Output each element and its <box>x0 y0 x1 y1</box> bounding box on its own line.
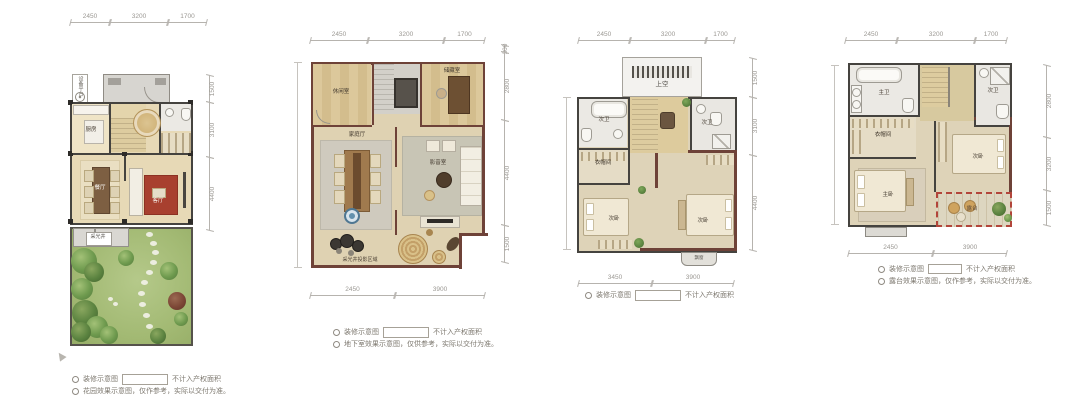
dim-label: 2450 <box>848 245 933 252</box>
chair <box>436 88 447 99</box>
dim-segment: 300 <box>504 45 518 52</box>
bathroom-right <box>692 99 735 150</box>
dim-segment: 3200 <box>897 27 975 41</box>
dim-segment: 3900 <box>933 240 1007 254</box>
tree <box>71 322 91 342</box>
plan3-dim-left <box>566 97 567 250</box>
plan1-dim-top: 2450 3200 1700 <box>70 9 207 23</box>
chair <box>334 190 345 204</box>
tree <box>160 262 178 280</box>
sofa <box>129 168 143 216</box>
legend-note: 不计入产权面积 <box>966 266 1015 273</box>
pillow <box>586 219 594 231</box>
cymbal-icon <box>336 248 342 254</box>
chair <box>110 202 120 214</box>
legend-label: 露台效果示意图，仅作参考，实际以交付为准。 <box>889 278 1036 285</box>
plan2-dim-right: 300 2800 4400 1500 <box>504 45 518 262</box>
plan2-dim-left <box>297 62 298 268</box>
round-table <box>436 172 452 188</box>
dim-label: 1700 <box>706 32 735 39</box>
rattan-stool <box>432 250 446 264</box>
wall <box>640 248 737 251</box>
chair <box>370 190 381 204</box>
dim-segment: 1500 <box>752 58 766 97</box>
pillow <box>586 203 594 215</box>
skylight-grille <box>632 66 692 78</box>
legend-swatch-box <box>122 374 168 385</box>
kitchen-counter <box>73 105 109 115</box>
column <box>68 219 73 224</box>
bench <box>906 178 914 206</box>
chair <box>110 170 120 182</box>
tree <box>168 292 186 310</box>
door-mat <box>155 78 166 85</box>
dim-label: 2450 <box>578 32 630 39</box>
pillow <box>725 199 732 212</box>
chair <box>334 172 345 186</box>
plan1-dim-right: 1500 3100 4400 <box>209 75 223 230</box>
sofa <box>460 146 482 206</box>
wall <box>420 125 485 127</box>
sink-icon <box>165 108 174 117</box>
dim-segment: 2450 <box>310 282 395 296</box>
path-stone <box>150 260 157 265</box>
dim-label: 2800 <box>505 79 512 93</box>
plant-icon <box>634 238 644 248</box>
dim-segment: 2450 <box>310 27 368 41</box>
dim-label: 1500 <box>505 236 512 250</box>
dim-segment: 2450 <box>845 27 897 41</box>
column <box>122 219 127 224</box>
dim-segment: 1700 <box>975 27 1007 41</box>
legend-bullet-icon <box>585 292 592 299</box>
dim-label: 3900 <box>652 275 734 282</box>
drum-kit-icon <box>352 240 364 252</box>
legend-note: 不计入产权面积 <box>685 292 734 299</box>
dining-label: 餐厅 <box>94 186 105 192</box>
dim-label: 1500 <box>753 70 760 84</box>
coffee-table <box>152 188 166 198</box>
door-mat <box>108 78 121 85</box>
long-table <box>344 150 370 212</box>
wall <box>655 150 658 188</box>
wall <box>848 157 916 159</box>
dim-label: 3100 <box>753 119 760 133</box>
chair <box>370 154 381 168</box>
north-arrow-icon <box>55 350 66 361</box>
dim-segment: 3450 <box>578 270 652 284</box>
armchair <box>426 140 440 152</box>
wall <box>577 183 629 185</box>
pillow <box>857 193 865 207</box>
plan2-dim-bottom: 2450 3900 <box>310 282 485 296</box>
dim-label: 2450 <box>310 287 395 294</box>
dim-segment: 4400 <box>209 157 223 230</box>
bench <box>678 200 686 230</box>
legend-bullet-icon <box>72 376 79 383</box>
dim-label: 1700 <box>444 32 485 39</box>
path-stone <box>146 270 153 275</box>
plant-icon <box>1004 214 1012 222</box>
dim-segment: 3900 <box>652 270 734 284</box>
stair-area <box>630 97 688 153</box>
pillow <box>857 175 865 189</box>
armchair <box>660 112 675 129</box>
pillow <box>997 156 1004 169</box>
living-label: 客厅 <box>152 199 163 205</box>
wardrobe <box>706 155 734 165</box>
dim-segment: 3100 <box>752 97 766 155</box>
wall <box>311 125 372 127</box>
bay-tab <box>865 227 907 237</box>
bay-label: 飘窗 <box>695 256 704 261</box>
wall <box>395 127 397 167</box>
table-runner <box>353 153 361 209</box>
dim-segment: 3200 <box>630 27 706 41</box>
dim-label: 4400 <box>753 195 760 209</box>
tree <box>71 278 93 300</box>
legend-row: 装修示意图 不计入产权面积 <box>333 327 482 338</box>
dim-segment: 4400 <box>752 155 766 250</box>
fan-icon <box>75 92 85 102</box>
second-bath <box>976 65 1010 125</box>
round-blue-seat <box>344 208 360 224</box>
toilet-icon <box>581 128 592 142</box>
dim-label: 2450 <box>70 14 110 21</box>
legend-swatch-box <box>928 264 962 274</box>
table <box>956 212 966 222</box>
void-area <box>622 57 702 97</box>
bathroom <box>161 104 191 131</box>
dim-segment: 1700 <box>444 27 485 41</box>
legend-row: 装修示意图 不计入产权面积 <box>72 374 221 385</box>
path-stone <box>108 297 113 301</box>
stair-core <box>374 64 420 114</box>
legend-label: 装修示意图 <box>889 266 924 273</box>
dim-segment: 2800 <box>504 52 518 120</box>
sink-icon <box>696 104 706 114</box>
legend-row: 地下室效果示意图，仅供参考，实际以交付为准。 <box>333 341 498 348</box>
legend-bullet-icon <box>333 329 340 336</box>
path-stone <box>152 250 159 255</box>
sink-icon <box>852 100 861 109</box>
dim-segment: 1500 <box>1046 190 1060 225</box>
bed <box>583 198 629 236</box>
wardrobe <box>852 130 861 154</box>
tree <box>118 250 134 266</box>
path-stone <box>143 313 150 318</box>
dim-label: 2800 <box>1047 94 1054 108</box>
bed-right-label: 次卧 <box>697 219 708 225</box>
desk <box>448 76 470 114</box>
wall <box>974 125 1012 127</box>
toilet-icon <box>181 108 191 121</box>
toilet-icon <box>902 98 914 113</box>
dim-label: 3900 <box>933 245 1007 252</box>
master-bath-label: 主卫 <box>878 91 889 97</box>
sink-icon <box>979 68 989 78</box>
legend-note: 不计入产权面积 <box>433 329 482 336</box>
dim-segment: 2450 <box>578 27 630 41</box>
legend-row: 露台效果示意图，仅作参考，实际以交付为准。 <box>878 278 1036 285</box>
dim-label: 2450 <box>845 32 897 39</box>
tv-wall <box>183 172 186 208</box>
bath-right-label: 次卫 <box>701 121 712 127</box>
light-well-label: 采光井 <box>90 235 105 240</box>
plant-icon <box>638 186 646 194</box>
chair <box>110 186 120 198</box>
dim-label: 1700 <box>168 14 207 21</box>
dim-segment: 3200 <box>368 27 444 41</box>
stair-core-box <box>394 78 418 108</box>
path-stone <box>141 280 148 285</box>
dim-label: 3200 <box>630 32 706 39</box>
dim-label: 2450 <box>310 32 368 39</box>
bed <box>854 170 906 212</box>
column <box>188 219 193 224</box>
plant-icon <box>992 202 1006 216</box>
floorplan-sheet: 2450 3200 1700 1500 3100 4400 设备平台 <box>0 0 1080 413</box>
dim-label: 3450 <box>578 275 652 282</box>
pillow <box>997 139 1004 152</box>
plan4-dim-right: 2800 3200 1500 <box>1046 65 1060 225</box>
wardrobe <box>938 122 947 162</box>
legend-bullet-icon <box>333 341 340 348</box>
dim-segment: 1500 <box>209 75 223 102</box>
legend-row: 花园效果示意图，仅作参考，实际以交付为准。 <box>72 388 230 395</box>
wall <box>934 120 936 192</box>
toilet-icon <box>996 104 1009 119</box>
path-stone <box>150 241 157 246</box>
chair <box>84 186 94 198</box>
tree <box>150 328 166 344</box>
legend-label: 地下室效果示意图，仅供参考，实际以交付为准。 <box>344 341 498 348</box>
dim-label: 3200 <box>897 32 975 39</box>
plant-icon <box>682 98 691 107</box>
wardrobe <box>598 240 632 249</box>
master-bed-label: 主卧 <box>882 193 893 199</box>
plan4-dim-top: 2450 3200 1700 <box>845 27 1007 41</box>
terrace-label: 露台 <box>966 207 977 213</box>
lightwell-note-label: 采光井投影区域 <box>342 258 377 263</box>
shower-icon <box>712 134 731 149</box>
chair <box>84 202 94 214</box>
legend-label: 花园效果示意图，仅作参考，实际以交付为准。 <box>83 388 230 395</box>
kitchen-label: 厨房 <box>85 128 96 134</box>
path-stone <box>139 302 146 307</box>
dim-segment: 1700 <box>706 27 735 41</box>
storage-closet <box>161 133 191 153</box>
sink-icon <box>613 129 623 139</box>
plan3-dim-top: 2450 3200 1700 <box>578 27 735 41</box>
dim-label: 3200 <box>368 32 444 39</box>
path-stone <box>146 232 153 237</box>
walkin-closet <box>579 150 628 183</box>
dim-segment: 4400 <box>504 120 518 225</box>
path-stone <box>146 324 153 329</box>
shower-icon <box>990 67 1010 85</box>
staircase <box>374 64 394 114</box>
legend-label: 装修示意图 <box>344 329 379 336</box>
bathtub-icon <box>591 101 627 118</box>
chair <box>334 154 345 168</box>
bath-left-label: 次卫 <box>598 118 609 124</box>
legend-swatch-box <box>383 327 429 338</box>
path-stone <box>138 291 145 296</box>
plan3-dim-right: 1500 3100 4400 <box>752 58 766 250</box>
door-swing-arc <box>144 87 159 103</box>
tv-cabinet <box>420 216 460 228</box>
void-label: 上空 <box>656 82 669 89</box>
dim-segment: 3100 <box>209 102 223 157</box>
plan3-dim-bottom: 3450 3900 <box>578 270 734 284</box>
dim-segment: 3900 <box>395 282 485 296</box>
legend-swatch-box <box>635 290 681 301</box>
plan2-dim-top: 2450 3200 1700 <box>310 27 485 41</box>
room-a-label: 休闲室 <box>333 90 350 96</box>
pot-icon <box>426 229 433 236</box>
av-label: 影音室 <box>430 161 447 167</box>
bed <box>686 194 734 236</box>
sink-icon <box>852 88 861 97</box>
plan4-dim-bottom: 2450 3900 <box>848 240 1007 254</box>
legend-label: 装修示意图 <box>596 292 631 299</box>
legend-bullet-icon <box>878 278 885 285</box>
family-label: 家庭厅 <box>349 133 366 139</box>
dim-label: 3100 <box>210 122 217 136</box>
wardrobe <box>852 119 914 128</box>
dim-label: 3200 <box>1047 156 1054 170</box>
foyer-round-rug <box>133 109 161 137</box>
pouf <box>424 190 435 201</box>
dim-label: 1500 <box>1047 200 1054 214</box>
dim-segment: 1700 <box>168 9 207 23</box>
stair-area <box>920 65 974 121</box>
plan4-dim-left <box>834 65 835 225</box>
wall <box>70 153 193 155</box>
room-b-label: 储藏室 <box>444 69 461 75</box>
tree <box>174 312 188 326</box>
staircase <box>922 67 948 107</box>
armchair <box>442 140 456 152</box>
legend-row: 装修示意图 不计入产权面积 <box>878 264 1015 274</box>
dim-segment: 3200 <box>110 9 168 23</box>
building-notch <box>459 233 488 269</box>
closet-label: 衣帽间 <box>595 161 612 167</box>
cymbal-icon <box>348 250 354 256</box>
bathtub-icon <box>856 67 902 83</box>
legend-bullet-icon <box>72 388 79 395</box>
dim-segment: 1500 <box>504 225 518 262</box>
stair-rail <box>948 67 950 107</box>
dim-segment: 3200 <box>1046 137 1060 190</box>
dim-label: 3200 <box>110 14 168 21</box>
second-bath-label: 次卫 <box>987 89 998 95</box>
chair <box>84 170 94 182</box>
tv-icon <box>427 219 453 223</box>
legend-note: 不计入产权面积 <box>172 376 221 383</box>
dim-segment: 2800 <box>1046 65 1060 137</box>
dim-segment: 2450 <box>70 9 110 23</box>
pillow <box>725 217 732 230</box>
wall <box>124 155 126 181</box>
wall <box>1009 117 1012 192</box>
closet-label: 衣帽间 <box>875 133 892 139</box>
dim-label: 3900 <box>395 287 485 294</box>
dim-segment: 2450 <box>848 240 933 254</box>
legend-bullet-icon <box>878 266 885 273</box>
dim-label: 4400 <box>505 165 512 179</box>
wall <box>395 210 397 235</box>
wall <box>734 150 737 251</box>
dim-label: 4400 <box>210 186 217 200</box>
second-bed-label: 次卧 <box>972 155 983 161</box>
tree <box>100 326 118 344</box>
equipment-platform: 设备平台 <box>72 74 88 104</box>
chair <box>370 172 381 186</box>
staircase <box>632 99 658 151</box>
entry-porch <box>103 74 170 105</box>
legend-row: 装修示意图 不计入产权面积 <box>585 290 734 301</box>
bed-left-label: 次卧 <box>608 217 619 223</box>
dim-label: 1500 <box>210 81 217 95</box>
legend-label: 装修示意图 <box>83 376 118 383</box>
path-stone <box>113 302 118 306</box>
rattan-chair <box>398 234 428 264</box>
dim-label: 1700 <box>975 32 1007 39</box>
